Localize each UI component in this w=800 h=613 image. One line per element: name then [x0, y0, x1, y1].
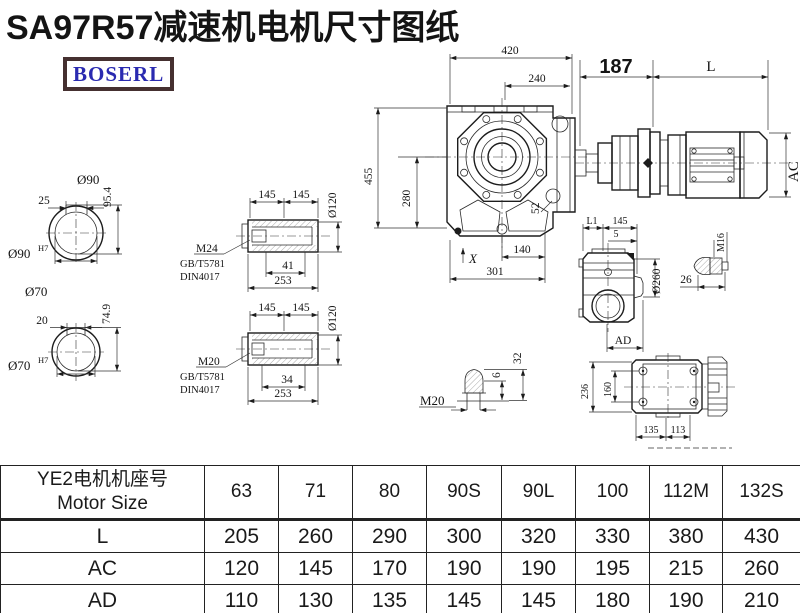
dim-52: 52	[530, 202, 542, 214]
dim-140: 140	[513, 244, 531, 256]
dim-dia260: Ø260	[651, 268, 663, 294]
dim-AD: AD	[615, 335, 632, 347]
header-motor-size-cn: YE2电机机座号	[1, 468, 204, 492]
dim-160: 160	[603, 382, 614, 397]
cell: 195	[576, 553, 650, 585]
cell: 145	[502, 585, 576, 613]
dim-ht-145b: 145	[292, 189, 310, 201]
dim-ht-41: 41	[282, 260, 294, 272]
dim-32: 32	[512, 352, 524, 364]
row-label: AC	[1, 553, 205, 585]
col-header: 71	[279, 466, 353, 520]
plug-m20-detail: M20 6 32	[419, 352, 527, 410]
cell: 180	[576, 585, 650, 613]
gearbox-side-view: L1 145 5 Ø260 AD	[579, 216, 663, 352]
callout-m20: M20	[198, 356, 220, 368]
dim-ht-253: 253	[274, 275, 292, 287]
dim-301: 301	[486, 266, 504, 278]
cell: 380	[650, 520, 723, 553]
drawing-sheet: SA97R57减速机电机尺寸图纸 BOSERL Ø90	[0, 0, 800, 613]
row-label: L	[1, 520, 205, 553]
dim-AC: AC	[786, 161, 800, 182]
callout-din-bottom: DIN4017	[180, 385, 220, 396]
cell: 190	[427, 553, 502, 585]
dim-key20: 20	[36, 315, 48, 327]
dim-hb-dia120: Ø120	[327, 305, 339, 331]
table-header-row: YE2电机机座号 Motor Size 63 71 80 90S 90L 100…	[1, 466, 800, 520]
col-header: 90S	[427, 466, 502, 520]
callout-gb-bottom: GB/T5781	[180, 372, 225, 383]
cell: 330	[576, 520, 650, 553]
cell: 320	[502, 520, 576, 553]
dim-L: L	[706, 59, 715, 75]
cell: 215	[650, 553, 723, 585]
dim-6: 6	[491, 372, 503, 378]
cell: 300	[427, 520, 502, 553]
cell: 430	[723, 520, 800, 553]
motor-size-table: YE2电机机座号 Motor Size 63 71 80 90S 90L 100…	[0, 465, 800, 613]
flange-rear-view: 236 160 135 113	[580, 353, 736, 448]
dim-455: 455	[363, 168, 375, 186]
hollow-shaft-top-view: 145 145 Ø120 M24 GB/T5781 DIN4017 41 253	[180, 189, 342, 292]
dim-hb-145a: 145	[258, 302, 276, 314]
dim-dia90-label: Ø90	[77, 172, 99, 187]
shaft-70-view: Ø70 20 74.9 Ø70 H7	[8, 284, 121, 381]
dim-M16: M16	[716, 233, 727, 252]
table-row-AD: AD 110 130 135 145 145 180 190 210	[1, 585, 800, 613]
col-header: 112M	[650, 466, 723, 520]
cell: 110	[205, 585, 279, 613]
cell: 190	[650, 585, 723, 613]
dim-dia90-tol: H7	[38, 243, 48, 253]
cell: 210	[723, 585, 800, 613]
dim-hb-34: 34	[281, 374, 293, 386]
cell: 130	[279, 585, 353, 613]
dim-ht-dia120: Ø120	[327, 192, 339, 218]
col-header: 100	[576, 466, 650, 520]
dim-26: 26	[680, 274, 692, 286]
dim-135: 135	[644, 425, 659, 436]
dim-sv5: 5	[614, 229, 619, 240]
dim-dia70-fit: Ø70	[8, 358, 30, 373]
cell: 135	[353, 585, 427, 613]
dim-420: 420	[501, 45, 519, 57]
cell: 260	[279, 520, 353, 553]
table-row-AC: AC 120 145 170 190 190 195 215 260	[1, 553, 800, 585]
cell: 190	[502, 553, 576, 585]
cell: 120	[205, 553, 279, 585]
col-header: 63	[205, 466, 279, 520]
shaft-90-view: Ø90 25 95.4 Ø90 H7	[8, 172, 122, 264]
dim-sv145: 145	[613, 216, 628, 227]
dim-hb-145b: 145	[292, 302, 310, 314]
header-motor-size: YE2电机机座号 Motor Size	[1, 466, 205, 520]
col-header: 80	[353, 466, 427, 520]
dim-95-4: 95.4	[102, 187, 114, 207]
callout-gb-top: GB/T5781	[180, 259, 225, 270]
dim-113: 113	[671, 425, 686, 436]
gearbox-front-view: 420 240 455 280 52 X 140	[363, 45, 588, 283]
cell: 145	[427, 585, 502, 613]
cell: 145	[279, 553, 353, 585]
motor-side-view: 187 L AC	[575, 56, 800, 198]
callout-m24: M24	[196, 243, 218, 255]
header-motor-size-en: Motor Size	[1, 492, 204, 516]
dim-plug-M20: M20	[420, 393, 445, 408]
dim-dia70-label: Ø70	[25, 284, 47, 299]
hollow-shaft-bottom-view: 145 145 Ø120 M20 GB/T5781 DIN4017 34 253	[180, 302, 342, 405]
bolt-m16-detail: M16 26	[680, 232, 728, 291]
dim-280: 280	[401, 190, 413, 208]
technical-drawing: Ø90 25 95.4 Ø90 H7	[0, 0, 800, 462]
table-row-L: L 205 260 290 300 320 330 380 430	[1, 520, 800, 553]
dim-236: 236	[580, 384, 591, 399]
cell: 260	[723, 553, 800, 585]
dim-dia70-tol: H7	[38, 355, 48, 365]
callout-din-top: DIN4017	[180, 272, 220, 283]
row-label: AD	[1, 585, 205, 613]
dim-hb-253: 253	[274, 388, 292, 400]
dim-240: 240	[528, 73, 546, 85]
col-header: 132S	[723, 466, 800, 520]
dim-ht-145a: 145	[258, 189, 276, 201]
cell: 170	[353, 553, 427, 585]
dim-dia90-fit: Ø90	[8, 246, 30, 261]
dim-key25: 25	[38, 195, 50, 207]
col-header: 90L	[502, 466, 576, 520]
dim-74-9: 74.9	[101, 304, 113, 324]
cell: 205	[205, 520, 279, 553]
mark-x: X	[468, 251, 478, 266]
dim-L1: L1	[586, 216, 597, 227]
cell: 290	[353, 520, 427, 553]
dim-187: 187	[599, 56, 632, 78]
